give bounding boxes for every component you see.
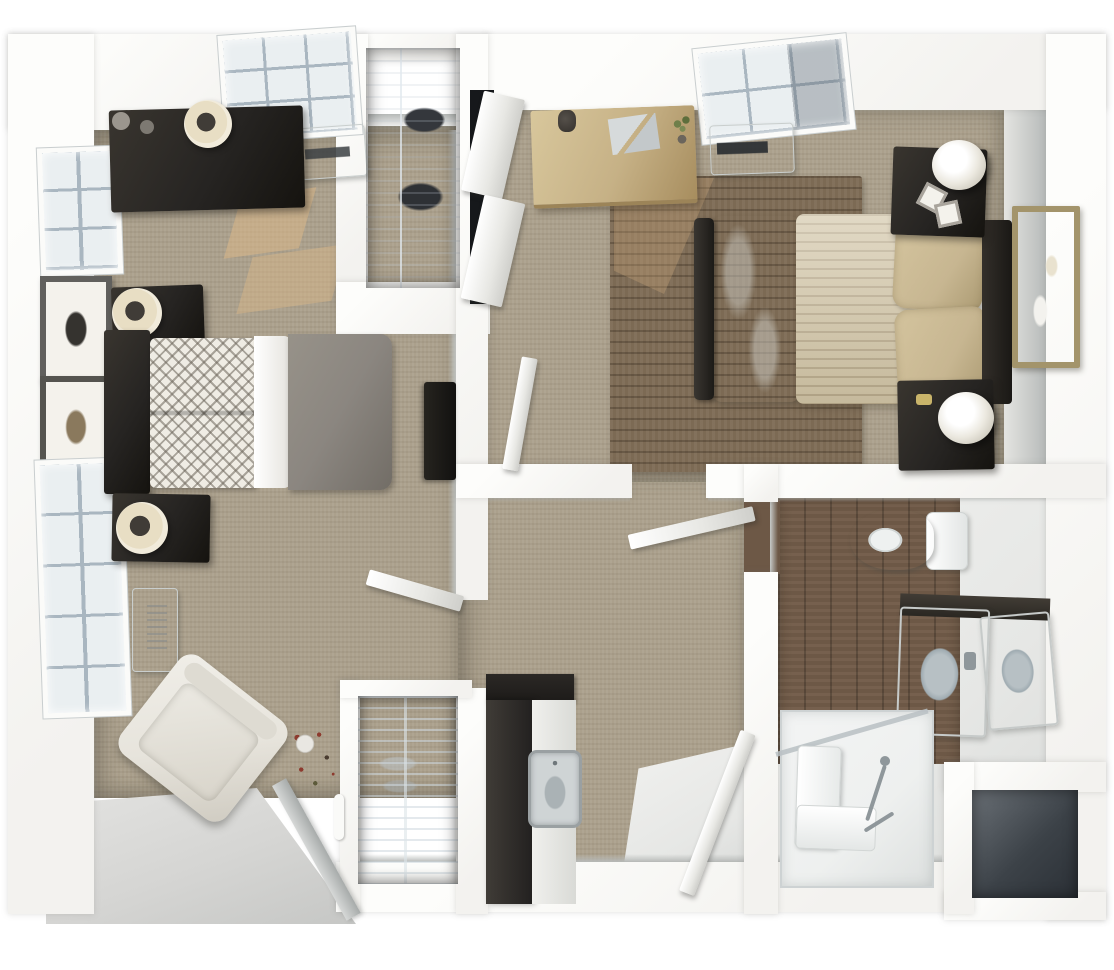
- toilet-bowl: [850, 510, 934, 570]
- picture-frame-decor: [934, 200, 962, 228]
- bedroom-hallway-wall: [456, 464, 632, 498]
- desk-plant: [668, 108, 696, 148]
- window: [42, 151, 118, 271]
- kitchenette-sink: [528, 750, 582, 828]
- gold-trinket: [916, 394, 932, 405]
- hanging-clothes-closet: [366, 48, 460, 288]
- bathroom-wall-upper: [744, 464, 778, 502]
- vanity-sink: [979, 611, 1059, 731]
- drum-lamp: [938, 392, 994, 444]
- desk-papers: [608, 113, 661, 155]
- ac-unit: [709, 123, 795, 176]
- bed-headboard: [982, 220, 1012, 404]
- wire-shelving-closet: [358, 696, 458, 884]
- bed-sheet-fold: [254, 336, 292, 488]
- dresser-decor: [112, 112, 130, 130]
- wall-mirror: [1012, 206, 1080, 368]
- wall-art-frame: [40, 276, 112, 382]
- bed-headboard: [104, 330, 150, 494]
- closet-door-handle: [334, 794, 344, 840]
- kitchenette-cabinet-front: [486, 700, 532, 904]
- dresser-decor: [140, 120, 154, 134]
- wall-tv: [424, 382, 456, 480]
- storage-niche: [972, 790, 1078, 898]
- dividing-wall-lower: [456, 688, 488, 914]
- wall-heater: [132, 588, 178, 672]
- kitchenette-counter-top: [486, 674, 574, 702]
- drum-lamp: [932, 140, 986, 190]
- bed-white-blanket: [712, 216, 800, 402]
- ac-unit: [298, 124, 367, 180]
- desk-lamp: [558, 110, 576, 132]
- table-lamp: [116, 502, 168, 554]
- floor-plan-render: [0, 0, 1114, 970]
- vanity-faucet: [964, 652, 976, 670]
- alcove-wall-left: [944, 762, 974, 914]
- bed-footboard: [694, 218, 714, 400]
- bed-pillows-patterned: [150, 338, 258, 488]
- bed-gray-duvet: [288, 334, 392, 490]
- dresser-lamp: [184, 100, 232, 148]
- shower-head: [880, 756, 890, 766]
